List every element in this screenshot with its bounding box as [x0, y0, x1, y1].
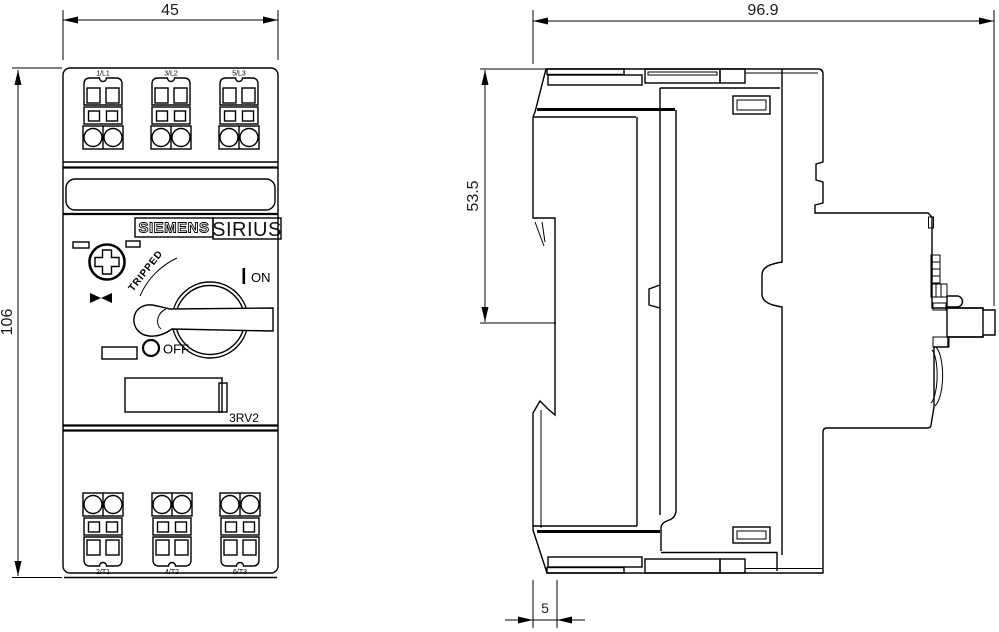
dim-text-96-9: 96.9: [747, 2, 778, 19]
dim-text-5: 5: [541, 600, 549, 616]
branding-row: SIEMENS SIRIUS: [135, 218, 282, 241]
side-view: [533, 69, 995, 573]
siemens-logo-text: SIEMENS: [138, 220, 209, 237]
terminal-label: 1/L1: [96, 71, 110, 78]
side-body-outline: [533, 69, 995, 573]
dim-text-45: 45: [161, 2, 179, 19]
sirius-text: SIRIUS: [212, 219, 282, 241]
terminal-label: 3/L2: [164, 71, 178, 78]
terminal-label: 2/T1: [96, 569, 110, 576]
model-text: 3RV2: [229, 411, 259, 425]
dim-text-106: 106: [0, 309, 16, 336]
terminal-label: 4/T2: [165, 569, 179, 576]
off-label: OFF: [163, 342, 189, 357]
dim-text-53-5: 53.5: [465, 180, 482, 211]
drawing-canvas: SIEMENS SIRIUS TRIPPED ON: [0, 0, 999, 632]
dimensional-drawing: SIEMENS SIRIUS TRIPPED ON: [0, 0, 999, 632]
dim-front-width: 45: [63, 2, 278, 60]
terminal-label: 6/T3: [233, 569, 247, 576]
din-clip-hook: [535, 222, 545, 246]
terminal-label: 5/L3: [232, 71, 246, 78]
dim-side-offset: 5: [505, 580, 585, 628]
on-label: ON: [251, 270, 271, 285]
lever-tip-profile: [947, 296, 963, 307]
dim-front-height: 106: [0, 68, 62, 578]
front-view: SIEMENS SIRIUS TRIPPED ON: [63, 68, 282, 578]
